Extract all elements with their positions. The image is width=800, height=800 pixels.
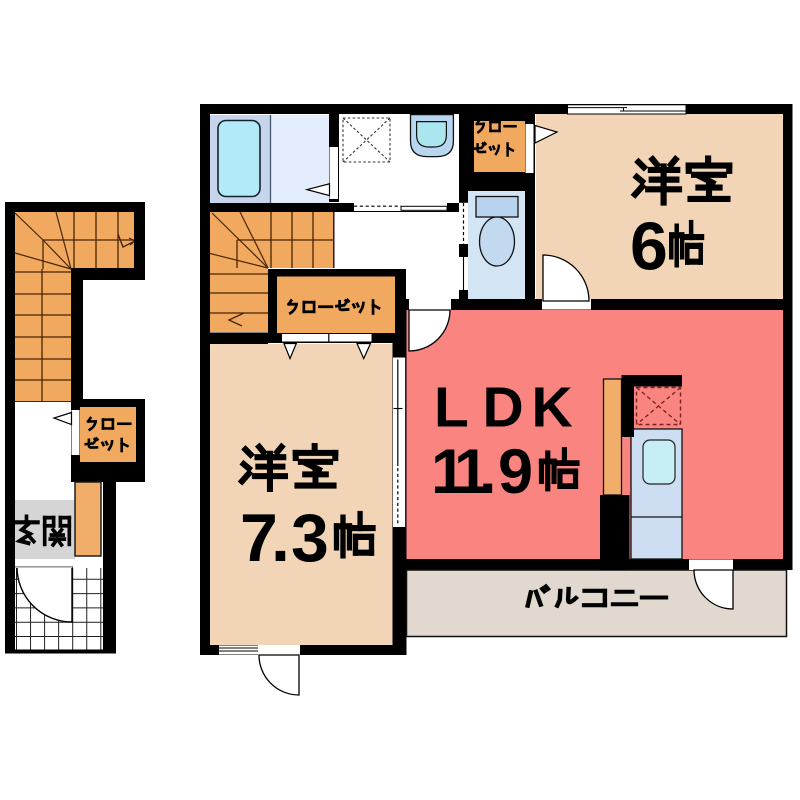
svg-text:9: 9 (498, 437, 533, 507)
svg-text:K: K (532, 376, 573, 440)
svg-text:D: D (483, 376, 524, 440)
svg-text:L: L (434, 376, 469, 440)
svg-text:.: . (479, 437, 497, 507)
svg-text:.: . (271, 500, 290, 576)
svg-text:6: 6 (630, 209, 668, 285)
svg-text:3: 3 (291, 500, 329, 576)
